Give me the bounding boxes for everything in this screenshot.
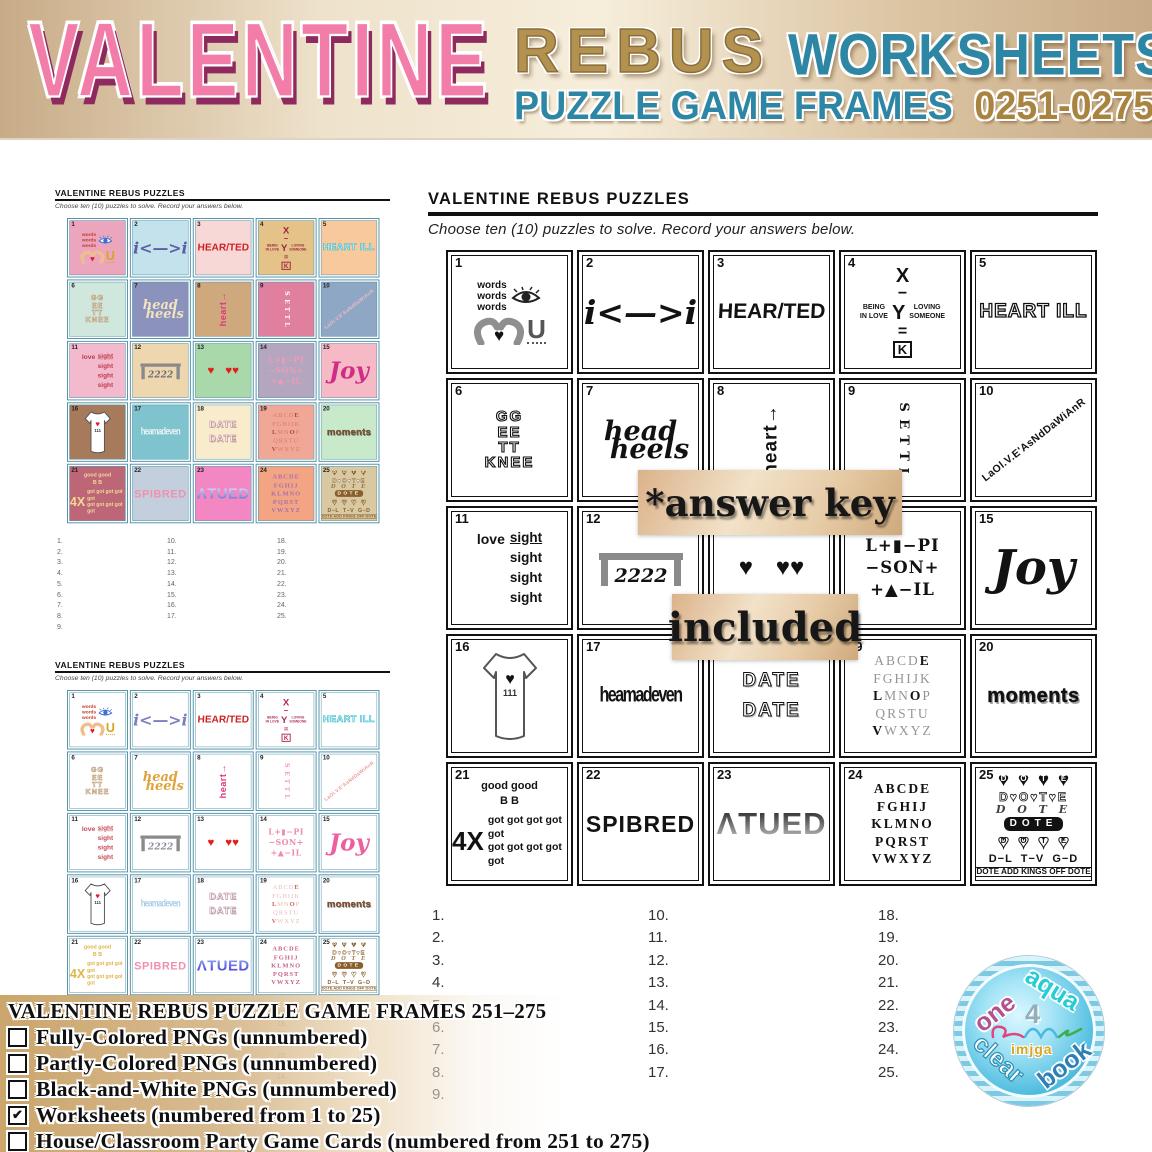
puzzle-cell-1: 1wordswordswords♥U xyxy=(67,690,128,750)
puzzle-cell-11: 11lovesightsightsightsight xyxy=(446,506,573,630)
puzzle-number: 18 xyxy=(197,405,204,412)
puzzle-number: 24 xyxy=(260,939,267,946)
puzzle-number: 25 xyxy=(323,939,330,946)
puzzle-number: 5 xyxy=(323,221,326,228)
puzzle-number: 20 xyxy=(323,405,330,412)
puzzle-cell-17: 17heamadeven xyxy=(130,874,191,934)
puzzle-cell-25: 25♥D♥O♥T♥ED♥O♥T♥ED O T EDOTE♥D♥O♥T♥ED−L … xyxy=(319,936,380,996)
puzzle-cell-14: 14L+▮−PI−SON++▲−IL xyxy=(256,813,317,873)
puzzle-number: 22 xyxy=(586,768,600,783)
checklist-item: ✔Worksheets (numbered from 1 to 25) xyxy=(8,1102,748,1128)
worksheet-preview-colored: VALENTINE REBUS PUZZLES Choose ten (10) … xyxy=(55,188,395,653)
puzzle-cell-22: 22SPIBRED xyxy=(577,762,704,886)
overlay-text: *answer key xyxy=(645,481,895,525)
puzzle-cell-6: 6GGEETTKNEE xyxy=(446,378,573,502)
puzzle-cell-15: 15Joy xyxy=(319,341,380,401)
puzzle-number: 12 xyxy=(134,344,141,351)
puzzle-text: SPIBRED xyxy=(134,959,186,972)
answer-line: 4. xyxy=(432,972,445,994)
svg-text:♥: ♥ xyxy=(494,326,504,345)
puzzle-text: SETTL xyxy=(845,399,960,480)
puzzle-number: 12 xyxy=(134,816,141,823)
answer-line: 19. xyxy=(277,548,287,559)
puzzle-cell-15: 15Joy xyxy=(970,506,1097,630)
puzzle-cell-18: 18DATEDATE xyxy=(193,402,254,462)
puzzle-number: 23 xyxy=(197,939,204,946)
puzzle-number: 4 xyxy=(260,693,263,700)
puzzle-text: L+▮−PI−SON++▲−IL xyxy=(845,535,960,602)
puzzle-text: ABCDEFGHIJKLMNOPQRSTUVWXYZ xyxy=(845,652,960,740)
puzzle-text: SETTL xyxy=(259,762,314,801)
puzzle-cell-19: 19ABCDEFGHIJKLMNOPQRSTUVWXYZ xyxy=(256,402,317,462)
puzzle-cell-21: 21good goodB B4Xgot got got got gotgot g… xyxy=(67,464,128,524)
puzzle-number: 1 xyxy=(71,693,74,700)
puzzle-text: heart→ xyxy=(196,304,251,315)
puzzle-cell-21: 21good goodB B4Xgot got got got gotgot g… xyxy=(67,936,128,996)
checklist-item: Fully-Colored PNGs (unnumbered) xyxy=(8,1024,748,1050)
svg-text:111: 111 xyxy=(94,900,101,905)
puzzle-number: 13 xyxy=(197,816,204,823)
puzzle-text: heamadeven xyxy=(141,898,180,910)
checklist-item-label: Worksheets (numbered from 1 to 25) xyxy=(36,1103,381,1128)
puzzle-number: 16 xyxy=(71,877,78,884)
subtitle-text: PUZZLE GAME FRAMES xyxy=(514,84,953,128)
puzzle-number: 9 xyxy=(260,282,263,289)
puzzle-shirt-art: ♥111 xyxy=(70,881,125,927)
answer-line: 18. xyxy=(878,905,899,927)
puzzle-grid: 1wordswordswords♥U2i<—>i3HEAR/TED4X−BEIN… xyxy=(67,218,379,523)
answer-line: 5. xyxy=(57,580,63,591)
puzzle-cell-4: 4X−BEINGIN LOVEYLOVINGSOMEONE=K xyxy=(256,690,317,750)
title-rule xyxy=(55,671,390,673)
puzzle-cell-19: 19ABCDEFGHIJKLMNOPQRSTUVWXYZ xyxy=(256,874,317,934)
puzzle-cell-21: 21good goodB B4Xgot got got got gotgot g… xyxy=(446,762,573,886)
puzzle-eye-art: wordswordswords♥U xyxy=(70,704,125,735)
puzzle-number: 5 xyxy=(979,256,986,271)
checklist-item-label: Fully-Colored PNGs (unnumbered) xyxy=(36,1025,368,1050)
puzzle-text: ABCDEFGHIJKLMNOPQRSTVWXYZ xyxy=(259,944,314,986)
title-valentine: VALENTINE xyxy=(28,0,490,122)
answer-line: 8. xyxy=(57,612,63,623)
puzzle-number: 16 xyxy=(71,405,78,412)
puzzle-eye-art: wordswordswords♥U xyxy=(452,280,567,345)
puzzle-cell-11: 11lovesightsightsightsight xyxy=(67,341,128,401)
answer-line: 2. xyxy=(57,548,63,559)
answer-column: 18.19.20.21.22.23.24.25. xyxy=(878,905,899,1084)
answer-line: 20. xyxy=(878,950,899,972)
puzzle-number: 24 xyxy=(260,467,267,474)
puzzle-number: 8 xyxy=(197,754,200,761)
puzzle-table-art: 2222 xyxy=(133,832,188,854)
svg-text:♥: ♥ xyxy=(95,891,100,900)
puzzle-cell-4: 4X−BEINGIN LOVEYLOVINGSOMEONE=K xyxy=(256,218,317,278)
puzzle-number: 17 xyxy=(134,877,141,884)
puzzle-cell-16: 16♥111 xyxy=(67,402,128,462)
puzzle-cell-5: 5HEART ILL xyxy=(970,250,1097,374)
puzzle-text: i<—>i xyxy=(133,710,187,729)
puzzle-text: heart→ xyxy=(714,429,829,451)
puzzle-text: X−BEINGIN LOVEYLOVINGSOMEONE=K xyxy=(845,266,960,357)
answer-line: 17. xyxy=(167,612,177,623)
answer-line: 10. xyxy=(648,905,669,927)
puzzle-text: ΛTUED xyxy=(197,957,250,974)
puzzle-text: lovesightsightsightsight xyxy=(452,528,567,609)
puzzle-cell-7: 7headheels xyxy=(130,279,191,339)
puzzle-text: headheels xyxy=(583,418,698,463)
puzzle-number: 10 xyxy=(323,754,330,761)
answer-line: 1. xyxy=(57,537,63,548)
puzzle-cell-2: 2i<—>i xyxy=(130,690,191,750)
puzzle-cell-1: 1wordswordswords♥U xyxy=(446,250,573,374)
puzzle-text: i<—>i xyxy=(133,238,187,257)
puzzle-number: 11 xyxy=(71,344,78,351)
subtitle-number-range: 0251-0275 xyxy=(974,84,1152,128)
puzzle-number: 6 xyxy=(455,384,462,399)
puzzle-cell-15: 15Joy xyxy=(319,813,380,873)
answer-line: 9. xyxy=(57,623,63,634)
answer-line: 23. xyxy=(277,591,287,602)
svg-text:2222: 2222 xyxy=(613,565,667,587)
puzzle-cell-2: 2i<—>i xyxy=(577,250,704,374)
puzzle-text: ΛTUED xyxy=(197,485,250,502)
answer-column: 10.11.12.13.14.15.16.17. xyxy=(167,537,177,623)
puzzle-number: 7 xyxy=(134,282,137,289)
svg-text:♥: ♥ xyxy=(505,671,515,688)
puzzle-text: X−BEINGIN LOVEYLOVINGSOMEONE=K xyxy=(259,226,314,270)
svg-text:♥: ♥ xyxy=(90,254,95,263)
puzzle-number: 23 xyxy=(717,768,731,783)
checklist-item-label: House/Classroom Party Game Cards (number… xyxy=(36,1129,650,1152)
puzzle-cell-3: 3HEAR/TED xyxy=(708,250,835,374)
title-rebus: REBUS xyxy=(514,16,771,87)
puzzle-cell-16: 16♥111 xyxy=(67,874,128,934)
answer-line: 10. xyxy=(167,537,177,548)
puzzle-text: HEAR/TED xyxy=(197,242,249,254)
puzzle-number: 15 xyxy=(323,816,330,823)
puzzle-cell-1: 1wordswordswords♥U xyxy=(67,218,128,278)
checklist-title: VALENTINE REBUS PUZZLE GAME FRAMES 251–2… xyxy=(8,998,748,1024)
checked-checkbox-icon: ✔ xyxy=(8,1106,27,1125)
header-banner: VALENTINE REBUS WORKSHEETS PUZZLE GAME F… xyxy=(0,0,1152,138)
puzzle-text: heart→ xyxy=(196,776,251,787)
puzzle-number: 14 xyxy=(260,816,267,823)
unchecked-checkbox-icon xyxy=(8,1054,27,1073)
puzzle-cell-20: 20moments xyxy=(970,634,1097,758)
answer-line: 20. xyxy=(277,558,287,569)
puzzle-cell-4: 4X−BEINGIN LOVEYLOVINGSOMEONE=K xyxy=(839,250,966,374)
puzzle-number: 15 xyxy=(323,344,330,351)
puzzle-number: 7 xyxy=(134,754,137,761)
svg-text:♥: ♥ xyxy=(90,726,95,735)
puzzle-text: GGEETTKNEE xyxy=(452,409,567,470)
puzzle-text: ♥D♥O♥T♥ED♥O♥T♥ED O T EDOTE♥D♥O♥T♥ED−L T−… xyxy=(976,771,1091,877)
puzzle-text: X−BEINGIN LOVEYLOVINGSOMEONE=K xyxy=(259,698,314,742)
puzzle-cell-24: 24ABCDEFGHIJKLMNOPQRSTVWXYZ xyxy=(256,464,317,524)
puzzle-number: 10 xyxy=(979,384,993,399)
puzzle-text: SETTL xyxy=(259,290,314,329)
puzzle-text: ♥ ♥♥ xyxy=(739,554,804,582)
worksheet-instructions: Choose ten (10) puzzles to solve. Record… xyxy=(55,203,395,210)
puzzle-text: HEART ILL xyxy=(323,242,375,253)
puzzle-number: 3 xyxy=(197,221,200,228)
puzzle-text: HEAR/TED xyxy=(717,300,826,324)
puzzle-cell-25: 25♥D♥O♥T♥ED♥O♥T♥ED O T EDOTE♥D♥O♥T♥ED−L … xyxy=(319,464,380,524)
answer-line: 13. xyxy=(648,972,669,994)
puzzle-cell-20: 20moments xyxy=(319,874,380,934)
answer-line: 23. xyxy=(878,1017,899,1039)
puzzle-number: 22 xyxy=(134,939,141,946)
puzzle-number: 6 xyxy=(71,754,74,761)
puzzle-number: 12 xyxy=(586,512,600,527)
puzzle-text: Joy xyxy=(329,357,369,384)
logo-badge: one aqua 4 imjga clear book xyxy=(962,964,1096,1098)
svg-text:2222: 2222 xyxy=(147,841,173,852)
puzzle-cell-14: 14L+▮−PI−SON++▲−IL xyxy=(256,341,317,401)
puzzle-text: ♥ ♥♥ xyxy=(208,364,239,377)
puzzle-cell-5: 5HEART ILL xyxy=(319,690,380,750)
puzzle-number: 5 xyxy=(323,693,326,700)
header-subtitle: PUZZLE GAME FRAMES 0251-0275 xyxy=(514,84,1152,129)
puzzle-cell-9: 9SETTL xyxy=(256,751,317,811)
puzzle-text: SPIBRED xyxy=(134,487,186,500)
puzzle-number: 2 xyxy=(586,256,593,271)
puzzle-number: 17 xyxy=(586,640,600,655)
puzzle-grid-partly: 1wordswordswords♥U2i<—>i3HEAR/TED4X−BEIN… xyxy=(67,690,379,995)
puzzle-cell-10: 10LaOl.V.E'AsNdDaWiAnR xyxy=(319,751,380,811)
answer-line: 2. xyxy=(432,927,445,949)
svg-text:111: 111 xyxy=(94,428,101,433)
answer-line: 1. xyxy=(432,905,445,927)
puzzle-cell-23: 23ΛTUED xyxy=(193,936,254,996)
puzzle-text: ABCDEFGHIJKLMNOPQRSTUVWXYZ xyxy=(259,883,314,925)
puzzle-number: 6 xyxy=(71,282,74,289)
puzzle-number: 17 xyxy=(134,405,141,412)
brand-logo: one aqua 4 imjga clear book xyxy=(954,956,1104,1106)
puzzle-cell-16: 16♥111 xyxy=(446,634,573,758)
puzzle-number: 25 xyxy=(323,467,330,474)
puzzle-text: ABCDEFGHIJKLMNOPQRSTUVWXYZ xyxy=(259,411,314,453)
answer-line: 25. xyxy=(277,612,287,623)
puzzle-number: 8 xyxy=(717,384,724,399)
puzzle-number: 23 xyxy=(197,467,204,474)
puzzle-cell-18: 18DATEDATE xyxy=(193,874,254,934)
puzzle-cell-6: 6GGEETTKNEE xyxy=(67,751,128,811)
puzzle-text: GGEETTKNEE xyxy=(70,767,125,796)
puzzle-text: ABCDEFGHIJKLMNOPQRSTVWXYZ xyxy=(259,472,314,514)
puzzle-number: 24 xyxy=(848,768,862,783)
puzzle-cell-11: 11lovesightsightsightsight xyxy=(67,813,128,873)
puzzle-text: LaOl.V.E'AsNdDaWiAnR xyxy=(321,778,376,784)
overlay-text: included xyxy=(668,604,862,651)
puzzle-text: lovesightsightsightsight xyxy=(70,351,125,390)
worksheet-instructions: Choose ten (10) puzzles to solve. Record… xyxy=(55,675,395,682)
answer-line: 6. xyxy=(57,591,63,602)
checklist-item-label: Partly-Colored PNGs (unnumbered) xyxy=(36,1051,377,1076)
answer-line: 3. xyxy=(57,558,63,569)
puzzle-number: 25 xyxy=(979,768,993,783)
checklist-item: Black-and-White PNGs (unnumbered) xyxy=(8,1076,748,1102)
puzzle-cell-7: 7headheels xyxy=(130,751,191,811)
answer-line: 24. xyxy=(878,1039,899,1061)
unchecked-checkbox-icon xyxy=(8,1132,27,1151)
logo-swirl-icon xyxy=(989,1017,1085,1043)
puzzle-cell-10: 10LaOl.V.E'AsNdDaWiAnR xyxy=(970,378,1097,502)
puzzle-grid: 1wordswordswords♥U2i<—>i3HEAR/TED4X−BEIN… xyxy=(446,250,1097,886)
puzzle-text: moments xyxy=(987,685,1079,708)
puzzle-text: DATEDATE xyxy=(196,417,251,446)
answer-key-overlay-line1: *answer key xyxy=(638,470,902,535)
unchecked-checkbox-icon xyxy=(8,1028,27,1047)
puzzle-text: lovesightsightsightsight xyxy=(70,823,125,862)
puzzle-cell-12: 122222 xyxy=(130,813,191,873)
answer-line: 22. xyxy=(277,580,287,591)
puzzle-text: good goodB B4Xgot got got got gotgot got… xyxy=(452,779,567,868)
puzzle-number: 4 xyxy=(848,256,855,271)
puzzle-text: heamadeven xyxy=(600,684,682,708)
answer-line: 18. xyxy=(277,537,287,548)
puzzle-text: L+▮−PI−SON++▲−IL xyxy=(259,827,314,859)
puzzle-number: 21 xyxy=(455,768,469,783)
puzzle-shirt-art: ♥111 xyxy=(452,648,567,744)
puzzle-text: ABCDEFGHIJKLMNOPQRSTVWXYZ xyxy=(845,780,960,868)
puzzle-text: moments xyxy=(327,427,371,438)
checklist-item: Partly-Colored PNGs (unnumbered) xyxy=(8,1050,748,1076)
answer-column: 1.2.3.4.5.6.7.8.9. xyxy=(57,537,63,633)
puzzle-number: 18 xyxy=(197,877,204,884)
answer-column: 18.19.20.21.22.23.24.25. xyxy=(277,537,287,623)
puzzle-number: 8 xyxy=(197,282,200,289)
puzzle-text: HEAR/TED xyxy=(197,714,249,726)
puzzle-text: ♥D♥O♥T♥ED♥O♥T♥ED O T EDOTE♥D♥O♥T♥ED−L T−… xyxy=(321,940,376,991)
puzzle-cell-12: 122222 xyxy=(130,341,191,401)
puzzle-cell-2: 2i<—>i xyxy=(130,218,191,278)
puzzle-cell-3: 3HEAR/TED xyxy=(193,690,254,750)
puzzle-number: 2 xyxy=(134,221,137,228)
puzzle-shirt-art: ♥111 xyxy=(70,409,125,455)
puzzle-number: 9 xyxy=(848,384,855,399)
answer-line: 21. xyxy=(878,972,899,994)
puzzle-cell-23: 23ΛTUED xyxy=(708,762,835,886)
answer-line: 12. xyxy=(167,558,177,569)
puzzle-text: HEART ILL xyxy=(323,714,375,725)
logo-word-imjga: imjga xyxy=(1011,1041,1053,1057)
puzzle-number: 19 xyxy=(260,877,267,884)
puzzle-text: ♥D♥O♥T♥ED♥O♥T♥ED O T EDOTE♥D♥O♥T♥ED−L T−… xyxy=(321,468,376,519)
product-checklist: VALENTINE REBUS PUZZLE GAME FRAMES 251–2… xyxy=(8,998,748,1152)
puzzle-cell-9: 9SETTL xyxy=(256,279,317,339)
puzzle-text: L+▮−PI−SON++▲−IL xyxy=(259,355,314,387)
puzzle-cell-13: 13♥ ♥♥ xyxy=(193,813,254,873)
puzzle-text: LaOl.V.E'AsNdDaWiAnR xyxy=(976,434,1091,446)
poster-page: VALENTINE REBUS WORKSHEETS PUZZLE GAME F… xyxy=(0,0,1152,1152)
puzzle-text: headheels xyxy=(133,770,188,792)
puzzle-cell-10: 10LaOl.V.E'AsNdDaWiAnR xyxy=(319,279,380,339)
puzzle-table-art: 2222 xyxy=(133,360,188,382)
puzzle-number: 14 xyxy=(260,344,267,351)
checklist-item: House/Classroom Party Game Cards (number… xyxy=(8,1128,748,1152)
answer-line: 25. xyxy=(878,1062,899,1084)
puzzle-text: ΛTUED xyxy=(716,806,826,842)
answer-line: 15. xyxy=(167,591,177,602)
answer-line: 4. xyxy=(57,569,63,580)
puzzle-number: 21 xyxy=(71,939,78,946)
answer-line: 14. xyxy=(167,580,177,591)
puzzle-grid: 1wordswordswords♥U2i<—>i3HEAR/TED4X−BEIN… xyxy=(67,690,379,995)
puzzle-text: heamadeven xyxy=(141,426,180,438)
puzzle-cell-17: 17heamadeven xyxy=(130,402,191,462)
puzzle-text: Joy xyxy=(329,829,369,856)
title-rule xyxy=(55,199,390,201)
answer-line: 3. xyxy=(432,950,445,972)
answer-line: 13. xyxy=(167,569,177,580)
puzzle-text: good goodB B4Xgot got got got gotgot got… xyxy=(70,472,125,515)
puzzle-number: 22 xyxy=(134,467,141,474)
answer-line: 11. xyxy=(167,548,177,559)
worksheet-title: VALENTINE REBUS PUZZLES xyxy=(55,660,395,670)
puzzle-number: 11 xyxy=(455,512,469,527)
puzzle-grid-colored: 1wordswordswords♥U2i<—>i3HEAR/TED4X−BEIN… xyxy=(67,218,379,523)
puzzle-number: 20 xyxy=(979,640,993,655)
puzzle-cell-3: 3HEAR/TED xyxy=(193,218,254,278)
puzzle-text: good goodB B4Xgot got got got gotgot got… xyxy=(70,944,125,987)
puzzle-grid-bw: 1wordswordswords♥U2i<—>i3HEAR/TED4X−BEIN… xyxy=(446,250,1097,886)
worksheet-title: VALENTINE REBUS PUZZLES xyxy=(55,188,395,198)
puzzle-text: DATEDATE xyxy=(196,889,251,918)
puzzle-number: 1 xyxy=(71,221,74,228)
answer-line: 24. xyxy=(277,601,287,612)
puzzle-cell-24: 24ABCDEFGHIJKLMNOPQRSTVWXYZ xyxy=(256,936,317,996)
puzzle-number: 7 xyxy=(586,384,593,399)
unchecked-checkbox-icon xyxy=(8,1080,27,1099)
puzzle-number: 13 xyxy=(197,344,204,351)
answer-line: 7. xyxy=(57,601,63,612)
checklist-items: Fully-Colored PNGs (unnumbered)Partly-Co… xyxy=(8,1024,748,1152)
puzzle-text: moments xyxy=(327,899,371,910)
puzzle-text: headheels xyxy=(133,298,188,320)
puzzle-text: HEART ILL xyxy=(979,301,1087,323)
puzzle-table-art: 2222 xyxy=(583,545,698,591)
svg-text:111: 111 xyxy=(502,688,516,698)
answer-line: 22. xyxy=(878,995,899,1017)
puzzle-text: ♥ ♥♥ xyxy=(208,836,239,849)
puzzle-text: Joy xyxy=(992,540,1075,596)
puzzle-number: 11 xyxy=(71,816,78,823)
puzzle-cell-5: 5HEART ILL xyxy=(319,218,380,278)
puzzle-number: 21 xyxy=(71,467,78,474)
puzzle-number: 4 xyxy=(260,221,263,228)
puzzle-cell-13: 13♥ ♥♥ xyxy=(193,341,254,401)
svg-text:♥: ♥ xyxy=(95,419,100,428)
puzzle-text: DATEDATE xyxy=(714,666,829,727)
puzzle-cell-8: 8heart→ xyxy=(193,279,254,339)
puzzle-number: 3 xyxy=(717,256,724,271)
answer-line: 21. xyxy=(277,569,287,580)
puzzle-cell-6: 6GGEETTKNEE xyxy=(67,279,128,339)
puzzle-number: 2 xyxy=(134,693,137,700)
title-rule xyxy=(428,212,1098,216)
puzzle-eye-art: wordswordswords♥U xyxy=(70,232,125,263)
title-worksheets: WORKSHEETS xyxy=(788,22,1152,89)
puzzle-cell-23: 23ΛTUED xyxy=(193,464,254,524)
puzzle-text: SPIBRED xyxy=(586,811,695,838)
answer-line: 16. xyxy=(167,601,177,612)
puzzle-number: 10 xyxy=(323,282,330,289)
puzzle-cell-8: 8heart→ xyxy=(193,751,254,811)
answer-line: 19. xyxy=(878,927,899,949)
puzzle-number: 15 xyxy=(979,512,993,527)
answer-key-overlay-line2: included xyxy=(672,594,858,660)
puzzle-number: 20 xyxy=(323,877,330,884)
